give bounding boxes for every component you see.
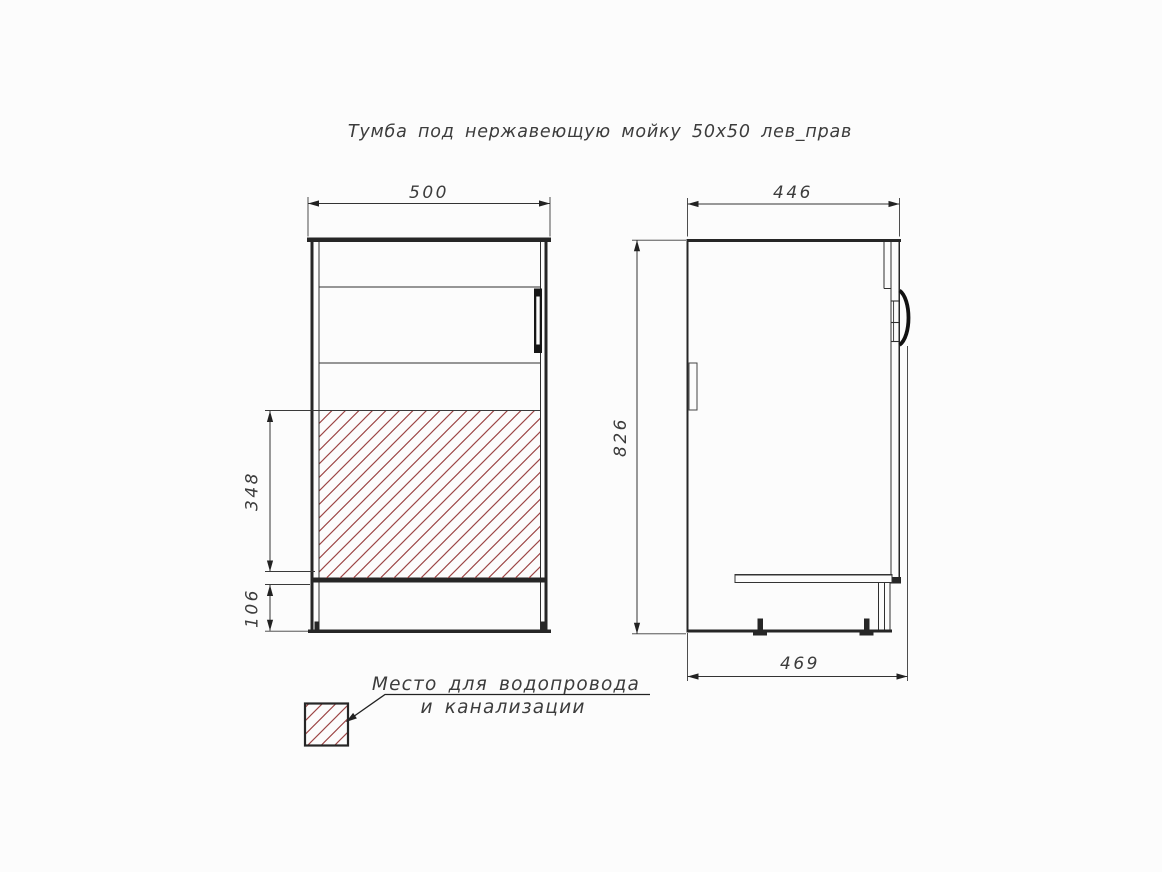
door-bottom-edge: [311, 578, 548, 583]
dim-cabinet-height-value: 826: [611, 417, 631, 457]
left-side-panel: [311, 242, 314, 633]
dimension-front-width: 500: [308, 183, 550, 237]
bottom-shelf-panel: [735, 575, 892, 583]
side-view: 446: [611, 183, 909, 681]
right-side-panel: [545, 242, 548, 633]
dim-front-width-value: 500: [409, 183, 449, 203]
dim-plinth-height-value: 106: [243, 588, 263, 628]
legend-note-line2: и канализации: [420, 697, 585, 718]
floor-line-front: [308, 630, 551, 634]
legend: Место для водопровода и канализации: [305, 674, 650, 746]
countertop-edge: [307, 238, 551, 243]
dim-hatch-height-value: 348: [243, 471, 263, 511]
dim-overall-depth-value: 469: [780, 654, 820, 674]
cabinet-foot-front-right: [541, 622, 546, 631]
dimension-cabinet-height: 826: [611, 240, 686, 634]
hinge-plate: [689, 363, 697, 410]
side-cabinet-outline: [687, 239, 902, 636]
dimension-side-depth: 446: [688, 183, 900, 237]
cabinet-foot-side-rear: [753, 619, 767, 636]
plumbing-zone-hatch: [320, 411, 541, 578]
technical-drawing: Тумба под нержавеющую мойку 50x50 лев_пр…: [0, 0, 1162, 872]
cabinet-foot-front-left: [315, 622, 320, 631]
countertop-edge-side: [687, 239, 902, 242]
cabinet-foot-side-front: [860, 619, 874, 636]
dimension-plinth-height: 106: [243, 585, 311, 632]
drawing-sheet: Тумба под нержавеющую мойку 50x50 лев_пр…: [0, 0, 1162, 872]
dim-side-depth-value: 446: [773, 183, 813, 203]
legend-note-line1: Место для водопровода: [372, 674, 640, 695]
legend-hatch-swatch: [305, 704, 348, 746]
front-view: 500 348: [243, 183, 552, 633]
drawing-title: Тумба под нержавеющую мойку 50x50 лев_пр…: [348, 122, 852, 142]
front-door-handle: [534, 289, 542, 354]
back-panel-line: [687, 239, 689, 632]
